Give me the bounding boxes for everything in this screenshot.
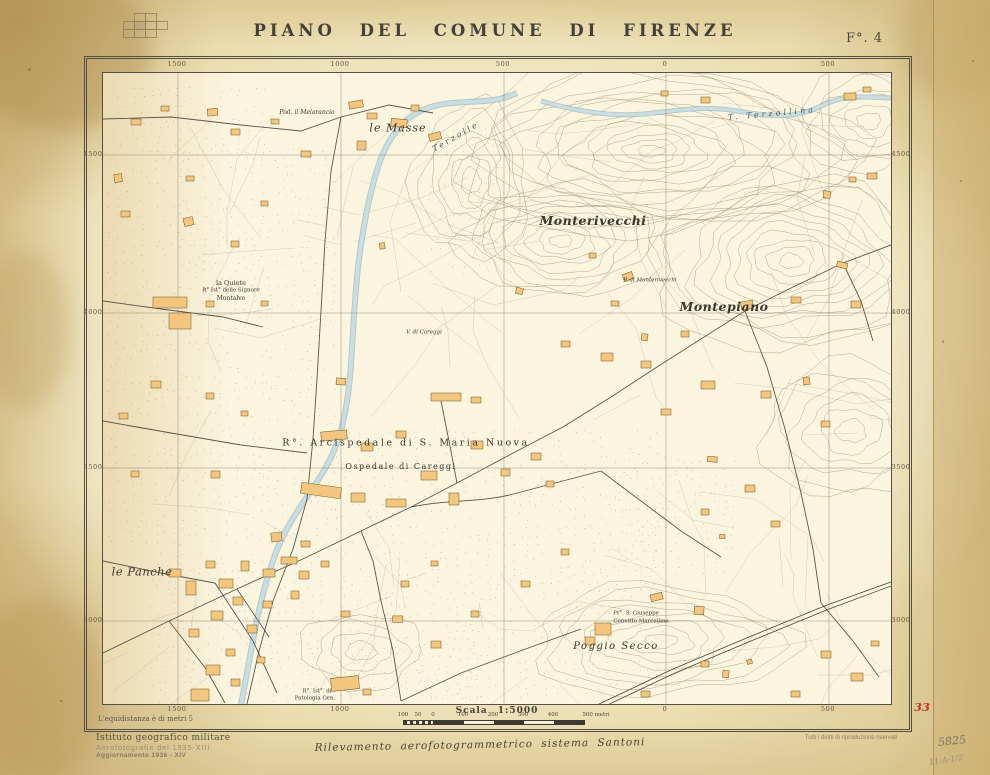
rights-note: Tutti i diritti di riproduzione riservat… [805,735,897,741]
grid-tick-right: 3500 [892,463,911,471]
scale-tick: 100 [398,712,409,718]
map-label-le-masse: le Masse [369,123,426,134]
sheet-number: F°. 4 [846,31,883,46]
scale-tick: 0 [431,712,435,718]
scale-tick: 200 [488,712,499,718]
grid-tick-bottom: 500 [821,705,835,713]
map-label-la-quiete: Montalve [217,296,245,302]
credit-aerophoto: Aerofotografie del 1935-XIII [96,743,210,752]
scanned-paper: PIANO DEL COMUNE DI FIRENZE F°. 4 [0,0,990,775]
grid-tick-top: 500 [821,60,835,68]
stain-speck [972,60,974,62]
grid-tick-top: 500 [496,60,510,68]
grid-tick-left: 3500 [84,463,103,471]
paper-stain [0,250,70,410]
grid-tick-left: 3000 [84,616,103,624]
grid-tick-left: 4500 [84,150,103,158]
map-label-convitto: Convitto Marcelline [613,619,668,625]
grid-tick-top: 1500 [168,60,187,68]
map-label-la-quiete: R° Ist° delle Signore [202,288,259,294]
grid-tick-right: 4500 [892,150,911,158]
map-title: PIANO DEL COMUNE DI FIRENZE [0,21,990,40]
contour-lines [300,73,891,698]
scale-tick: 500 metri [582,712,609,718]
river-terzollina [541,97,891,116]
map-label-la-quiete: la Quiete [216,280,246,287]
map-label-pod-melarancio: Pod. il Melarancio [279,110,334,116]
map-label-patologia: Patologia Gen. [295,696,336,702]
stain-speck [28,68,31,71]
grid-tick-right: 4000 [892,308,911,316]
map-label-poggio-secco: Poggio Secco [573,642,659,652]
map-edge-stain [103,73,233,704]
map-label-le-panche: le Panche [112,566,173,578]
map-label-v-di-careggi: V. di Careggi [406,330,442,336]
map-label-patologia: R°. Ist°. di [302,689,331,695]
survey-note: Rilevamento aerofotogrammetrico sistema … [315,736,646,754]
scale-tick: 100 [458,712,469,718]
map-label-convitto: Pr°. S. Giuseppe [613,611,659,617]
grid-tick-top: 0 [663,60,668,68]
scale-tick: 50 [415,712,422,718]
grid-tick-left: 4000 [84,308,103,316]
stain-speck [942,340,944,343]
map-label-p-monterivecchi: P. di Monterivecchi [623,278,676,284]
scale-bar [433,720,585,726]
grid-tick-top: 1000 [331,60,350,68]
paper-fold-band [933,0,990,775]
stain-speck [60,700,63,702]
grid-tick-bottom: 1500 [168,705,187,713]
scale-tick: 300 [518,712,529,718]
equidistance-note: L'equidistanza è di metri 5 [98,715,193,723]
map-label-arcispedale: R°. Arcispedale di S. Maria Nuova [282,438,529,448]
map-canvas [102,72,892,705]
credit-institute: Istituto geografico militare [96,733,230,743]
red-sheet-number: 33 [914,700,930,714]
grid-tick-bottom: 0 [663,705,668,713]
map-label-monterivecchi: Monterivecchi [539,215,646,228]
map-label-ospedale: Ospedale di Careggi [345,463,456,471]
map-label-montepiano: Montepiano [679,301,768,314]
credit-update: Aggiornamento 1936 - XIV [96,752,186,759]
stain-speck [960,180,962,182]
scale-bar-extension [403,720,435,726]
scale-tick: 400 [548,712,559,718]
grid-tick-right: 3000 [892,616,911,624]
grid-tick-bottom: 1000 [331,705,350,713]
